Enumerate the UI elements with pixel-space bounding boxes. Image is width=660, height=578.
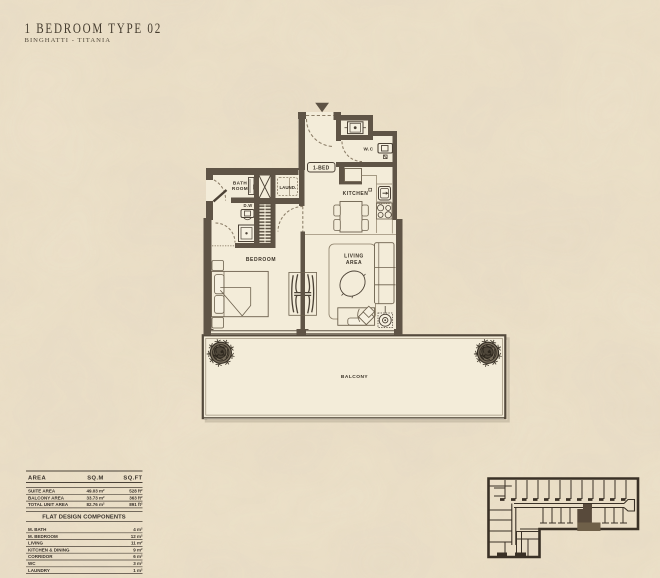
svg-text:82.76 m²: 82.76 m² xyxy=(86,502,105,507)
svg-text:1 BEDROOM TYPE 02: 1 BEDROOM TYPE 02 xyxy=(25,21,163,37)
svg-text:SQ.FT: SQ.FT xyxy=(123,476,142,482)
svg-text:11 m²: 11 m² xyxy=(131,541,143,546)
svg-text:363 ft²: 363 ft² xyxy=(129,495,143,500)
svg-text:M. BATH: M. BATH xyxy=(28,527,46,532)
svg-text:M. BEDROOM: M. BEDROOM xyxy=(28,534,58,539)
svg-text:1 m²: 1 m² xyxy=(133,568,143,573)
svg-text:BALCONY AREA: BALCONY AREA xyxy=(28,495,65,500)
svg-text:W.C: W.C xyxy=(364,146,374,151)
svg-text:4 m²: 4 m² xyxy=(133,527,143,532)
svg-text:KITCHEN: KITCHEN xyxy=(343,191,369,197)
svg-text:SUITE AREA: SUITE AREA xyxy=(28,489,56,494)
svg-text:1-BED: 1-BED xyxy=(313,166,330,172)
svg-text:BALCONY: BALCONY xyxy=(341,374,369,380)
svg-text:CORRIDOR: CORRIDOR xyxy=(28,554,53,559)
svg-text:SQ.M: SQ.M xyxy=(87,476,103,482)
svg-text:WC: WC xyxy=(28,561,36,566)
svg-text:891 ft²: 891 ft² xyxy=(129,502,143,507)
svg-text:12 m²: 12 m² xyxy=(131,534,143,539)
svg-text:LIVING: LIVING xyxy=(344,254,364,260)
svg-text:D.W: D.W xyxy=(243,203,252,208)
svg-text:LAUND.: LAUND. xyxy=(280,185,297,190)
svg-text:LAUNDRY: LAUNDRY xyxy=(28,568,50,573)
svg-text:33.73 m²: 33.73 m² xyxy=(86,495,105,500)
svg-text:BATH: BATH xyxy=(233,181,247,186)
svg-text:3 m²: 3 m² xyxy=(133,561,143,566)
svg-text:LIVING: LIVING xyxy=(28,541,44,546)
svg-text:528 ft²: 528 ft² xyxy=(129,489,143,494)
svg-text:ROOM: ROOM xyxy=(232,186,248,191)
svg-text:TOTAL UNIT AREA: TOTAL UNIT AREA xyxy=(28,502,69,507)
svg-text:6 m²: 6 m² xyxy=(133,554,143,559)
svg-text:FLAT DESIGN COMPONENTS: FLAT DESIGN COMPONENTS xyxy=(42,515,126,521)
svg-text:9 m²: 9 m² xyxy=(133,547,143,552)
svg-text:KITCHEN & DINING: KITCHEN & DINING xyxy=(28,547,70,552)
svg-text:AREA: AREA xyxy=(346,260,362,266)
svg-text:AREA: AREA xyxy=(28,476,46,482)
svg-text:BEDROOM: BEDROOM xyxy=(246,257,276,263)
svg-text:49.03 m²: 49.03 m² xyxy=(86,489,105,494)
svg-text:BINGHATTI - TITANIA: BINGHATTI - TITANIA xyxy=(25,37,112,44)
